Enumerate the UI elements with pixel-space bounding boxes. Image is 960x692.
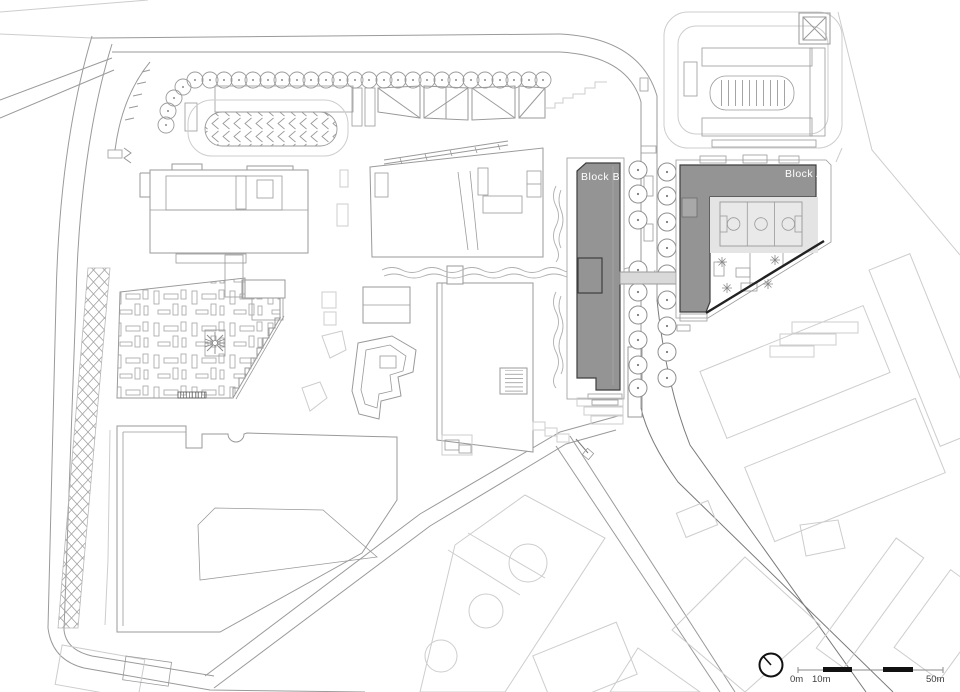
scale-label-50m: 50m [926, 674, 945, 685]
central-building-lower [437, 266, 569, 453]
central-building-upper [370, 141, 543, 257]
crossed-square-ramp [799, 13, 830, 44]
block-b-building: Block B [567, 158, 624, 424]
scale-bar: 0m 10m 50m [790, 667, 945, 685]
scale-label-10m: 10m [812, 674, 831, 685]
northwest-paths [108, 62, 197, 163]
bridge-connector [620, 272, 681, 284]
parking-lot-northeast [640, 12, 842, 153]
crosswalk [641, 146, 656, 153]
site-plan-drawing: Block B [0, 0, 960, 692]
parking-herringbone [188, 86, 375, 156]
scale-label-0m: 0m [790, 674, 803, 685]
stairs [644, 224, 653, 241]
block-a-label: Block A [785, 168, 824, 180]
north-arrow-icon [760, 654, 783, 677]
block-b-label: Block B [581, 171, 620, 183]
crosswalk [640, 78, 648, 91]
basketball-court [720, 202, 802, 246]
block-a-building: Block A [676, 155, 858, 357]
west-embankment-hatch [58, 268, 110, 628]
market-plaza [117, 278, 284, 399]
site-plan-page: Block B [0, 0, 960, 692]
southwest-building [105, 426, 472, 632]
